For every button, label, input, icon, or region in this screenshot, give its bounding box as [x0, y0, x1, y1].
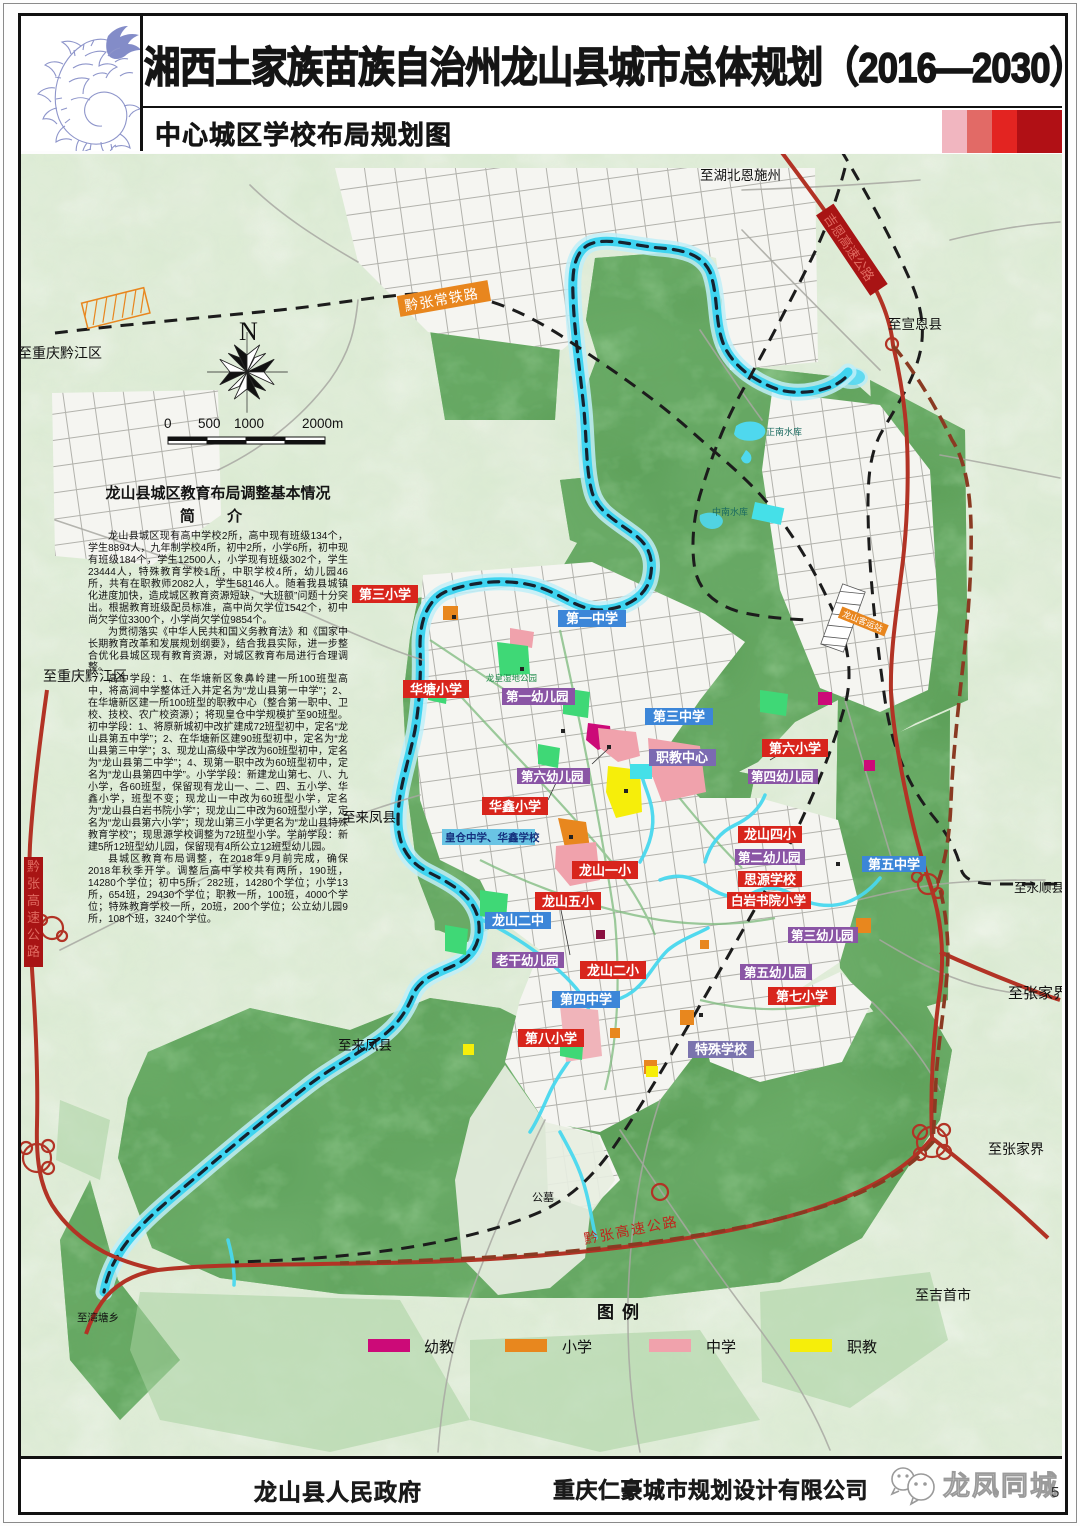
svg-text:第六幼儿园: 第六幼儿园 [521, 769, 584, 784]
svg-text:0: 0 [164, 416, 172, 431]
svg-text:第三幼儿园: 第三幼儿园 [791, 928, 854, 943]
svg-text:华塘小学: 华塘小学 [410, 682, 462, 697]
svg-text:第二幼儿园: 第二幼儿园 [738, 850, 801, 865]
svg-text:高: 高 [27, 893, 40, 908]
svg-text:小学: 小学 [562, 1339, 592, 1356]
svg-text:龙山五小: 龙山五小 [542, 894, 594, 909]
svg-text:幼教: 幼教 [424, 1339, 454, 1356]
svg-text:至宣恩县: 至宣恩县 [888, 317, 942, 332]
svg-text:500: 500 [198, 416, 221, 431]
svg-text:张: 张 [27, 876, 40, 891]
svg-text:华鑫小学: 华鑫小学 [489, 799, 541, 814]
svg-text:至张家界: 至张家界 [1008, 985, 1062, 1002]
svg-text:皇仓中学、华鑫学校: 皇仓中学、华鑫学校 [445, 831, 540, 844]
svg-text:特殊学校: 特殊学校 [695, 1042, 748, 1057]
svg-text:龙皇湿地公园: 龙皇湿地公园 [486, 673, 537, 683]
svg-text:速: 速 [27, 910, 40, 925]
svg-text:龙山二中: 龙山二中 [492, 913, 544, 928]
svg-text:思源学校: 思源学校 [744, 872, 797, 887]
svg-text:公墓: 公墓 [532, 1191, 554, 1204]
svg-text:路: 路 [27, 944, 40, 959]
svg-text:第八小学: 第八小学 [525, 1031, 577, 1046]
svg-text:职教中心: 职教中心 [656, 750, 708, 765]
svg-text:第四幼儿园: 第四幼儿园 [751, 769, 814, 784]
svg-text:白岩书院小学: 白岩书院小学 [731, 893, 807, 908]
svg-text:黔: 黔 [27, 859, 40, 874]
svg-text:第四中学: 第四中学 [560, 992, 612, 1007]
svg-text:第一幼儿园: 第一幼儿园 [506, 689, 569, 704]
svg-text:至永顺县: 至永顺县 [1014, 881, 1062, 895]
svg-text:龙凤同城: 龙凤同城 [943, 1471, 1059, 1501]
svg-text:龙山一小: 龙山一小 [579, 863, 631, 878]
svg-text:至吉首市: 至吉首市 [915, 1287, 971, 1303]
svg-text:图例: 图例 [597, 1302, 647, 1322]
svg-text:中南水库: 中南水库 [712, 506, 748, 517]
svg-text:中学: 中学 [706, 1339, 736, 1356]
svg-text:公: 公 [27, 927, 40, 942]
svg-text:2000m: 2000m [302, 416, 343, 431]
svg-text:至重庆黔江区: 至重庆黔江区 [21, 345, 102, 361]
svg-text:至张家界: 至张家界 [988, 1141, 1044, 1157]
svg-text:第六小学: 第六小学 [769, 741, 821, 756]
svg-text:N: N [239, 317, 258, 346]
svg-text:第三小学: 第三小学 [359, 587, 411, 602]
svg-text:5: 5 [1051, 1484, 1059, 1501]
svg-text:职教: 职教 [847, 1339, 877, 1356]
svg-text:至来凤县: 至来凤县 [342, 810, 396, 825]
svg-text:第五幼儿园: 第五幼儿园 [744, 965, 807, 980]
svg-text:第七小学: 第七小学 [776, 989, 828, 1004]
svg-text:正南水库: 正南水库 [766, 426, 802, 437]
svg-text:1000: 1000 [234, 416, 264, 431]
svg-text:第五中学: 第五中学 [868, 857, 920, 872]
svg-text:至湾塘乡: 至湾塘乡 [77, 1311, 119, 1324]
svg-text:至湖北恩施州: 至湖北恩施州 [700, 168, 781, 183]
svg-text:第三中学: 第三中学 [653, 709, 705, 724]
svg-text:至来凤县: 至来凤县 [338, 1038, 392, 1053]
svg-text:第一中学: 第一中学 [566, 611, 618, 626]
svg-text:龙山四小: 龙山四小 [744, 827, 796, 842]
svg-text:老干幼儿园: 老干幼儿园 [495, 953, 559, 968]
svg-text:龙山二小: 龙山二小 [587, 963, 639, 978]
